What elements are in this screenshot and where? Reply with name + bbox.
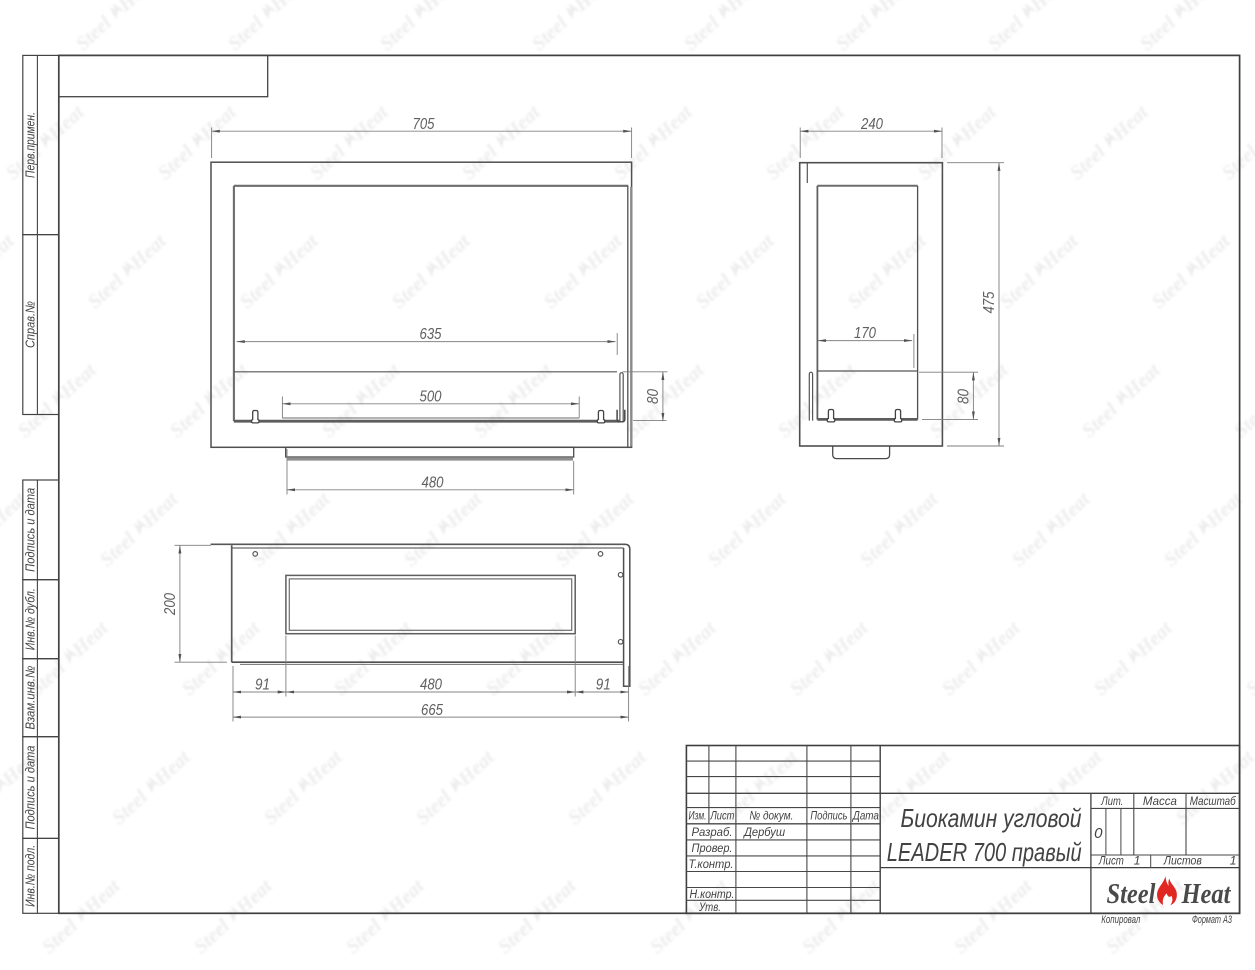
svg-text:Листов: Листов [1163,854,1202,868]
svg-text:91: 91 [596,677,611,694]
svg-text:Справ.№: Справ.№ [22,301,37,348]
svg-text:170: 170 [854,325,876,342]
svg-text:200: 200 [162,593,179,616]
svg-text:480: 480 [420,677,442,694]
svg-text:480: 480 [422,475,444,492]
svg-text:Масштаб: Масштаб [1190,794,1237,808]
svg-text:Разраб.: Разраб. [692,825,733,839]
svg-text:Биокамин угловой: Биокамин угловой [901,803,1082,833]
svg-text:Масса: Масса [1143,794,1177,808]
svg-text:240: 240 [860,116,883,133]
svg-text:80: 80 [645,389,662,404]
svg-text:Н.контр.: Н.контр. [690,887,735,901]
svg-text:Подпись и дата: Подпись и дата [22,746,37,830]
svg-text:Копировал: Копировал [1101,914,1140,926]
svg-text:1: 1 [1134,854,1141,868]
svg-text:Подпись: Подпись [810,809,847,823]
svg-text:475: 475 [981,291,998,313]
svg-text:705: 705 [413,116,435,133]
svg-text:Лист: Лист [710,809,735,823]
svg-text:Лист: Лист [1098,854,1124,868]
svg-text:91: 91 [255,677,270,694]
svg-text:Формат А3: Формат А3 [1192,914,1233,926]
svg-text:Перв.примен.: Перв.примен. [22,112,37,178]
svg-text:№ докум.: № докум. [749,809,793,823]
svg-text:LEADER 700 правый: LEADER 700 правый [887,837,1082,867]
svg-text:Провер.: Провер. [692,841,733,855]
svg-text:500: 500 [420,388,442,405]
svg-text:Взам.инв.№: Взам.инв.№ [22,666,37,730]
svg-text:1: 1 [1230,854,1237,868]
svg-text:Т.контр.: Т.контр. [689,857,734,871]
svg-text:Подпись и дата: Подпись и дата [22,488,37,572]
svg-text:Heat: Heat [1181,878,1232,910]
svg-text:Инв.№ дубл.: Инв.№ дубл. [22,588,37,650]
svg-text:0: 0 [1094,825,1103,842]
svg-text:Дербуш: Дербуш [742,825,785,839]
svg-text:Изм.: Изм. [689,809,707,823]
svg-text:Инв.№ подл.: Инв.№ подл. [22,845,37,907]
svg-text:Steel: Steel [1107,878,1157,910]
svg-text:Утв.: Утв. [698,900,721,914]
svg-text:Лит.: Лит. [1101,794,1124,808]
svg-text:635: 635 [420,326,442,343]
svg-text:Дата: Дата [851,809,879,823]
svg-text:665: 665 [421,702,443,719]
svg-text:80: 80 [955,389,972,404]
